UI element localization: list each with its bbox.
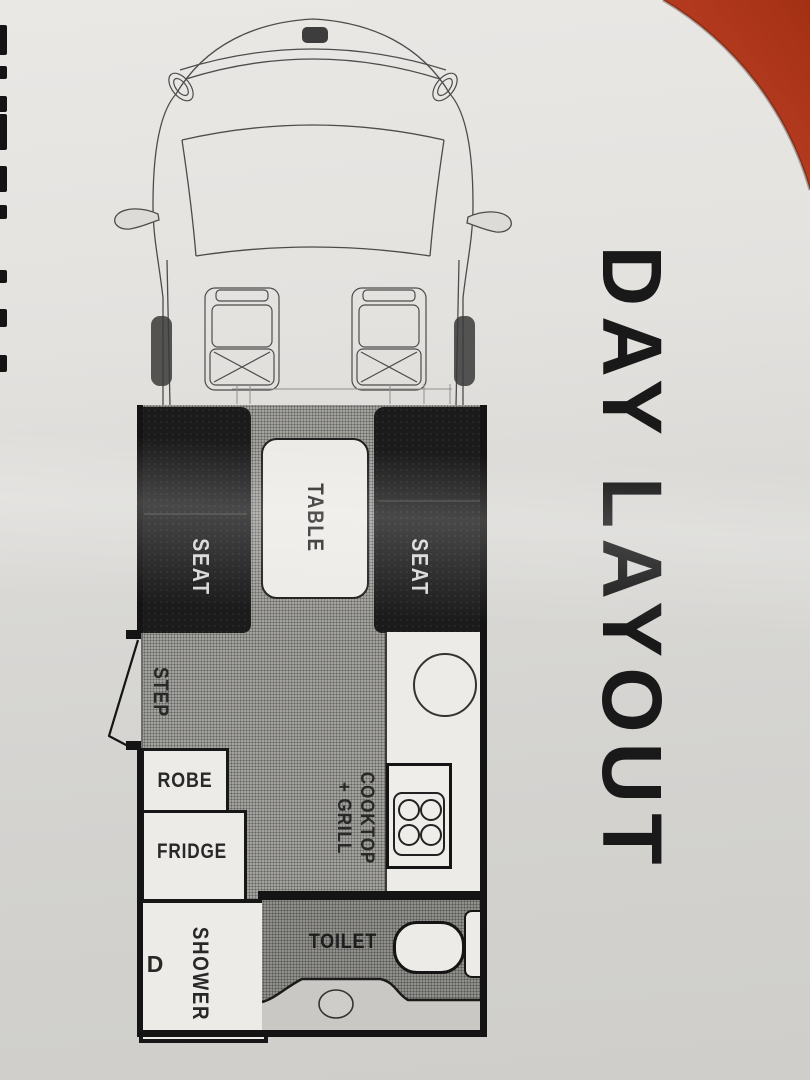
wall-right — [480, 405, 487, 1037]
seat-seam — [378, 500, 481, 502]
cab-rear-lines — [232, 384, 452, 404]
red-corner-graphic — [645, 0, 810, 205]
cut-off-text-fragment — [0, 270, 7, 283]
cut-off-text-fragment — [0, 66, 7, 79]
table-label: TABLE — [303, 482, 327, 553]
burner — [398, 824, 420, 846]
sink — [413, 653, 477, 717]
entry-door-swing — [100, 625, 150, 755]
cut-off-text-fragment — [0, 166, 7, 192]
basin — [319, 990, 353, 1018]
wall-bottom — [137, 1030, 487, 1037]
van-body-outline — [153, 19, 473, 406]
cut-off-text-fragment — [0, 114, 7, 150]
cut-off-text-fragment — [0, 309, 7, 327]
brochure-page: SEAT SEAT TABLE STEP ROBE FRIDGE SHOWER … — [0, 0, 810, 1080]
side-mirrors — [115, 209, 511, 232]
cut-off-text-fragment — [0, 355, 7, 372]
seat-left-label: SEAT — [189, 537, 213, 597]
cut-off-text-fragment — [0, 96, 7, 112]
corner-lights — [164, 69, 462, 105]
toilet-label: TOILET — [301, 931, 386, 953]
toilet-bowl — [393, 921, 465, 974]
cooktop-label-line1: COOKTOP — [355, 772, 378, 864]
burner — [398, 799, 420, 821]
cooktop-label-line2: + GRILL — [332, 782, 355, 854]
wall-left-upper — [137, 405, 143, 633]
cab-seats — [205, 288, 426, 390]
wall-left-lower — [137, 748, 143, 1037]
cooktop-label: COOKTOP + GRILL — [332, 773, 378, 863]
burner — [420, 799, 442, 821]
shower-door-marker: D — [144, 951, 166, 977]
step-label: STEP — [149, 664, 171, 720]
dinette-seat-right — [374, 407, 485, 633]
cut-off-text-fragment — [0, 205, 7, 219]
cooktop-unit — [386, 763, 452, 869]
dinette-seat-left — [140, 407, 251, 633]
fridge-label: FRIDGE — [151, 841, 233, 863]
cut-off-text-fragment — [0, 25, 7, 55]
windshield-sensor-blob — [302, 27, 328, 43]
burner — [420, 824, 442, 846]
toilet-wall — [258, 891, 483, 900]
seat-seam — [144, 513, 247, 515]
robe-label: ROBE — [149, 770, 220, 792]
cooktop-pan — [393, 792, 445, 856]
seat-right-label: SEAT — [408, 537, 432, 597]
page-title: DAY LAYOUT — [586, 240, 678, 880]
van-top-view-drawing — [90, 0, 530, 412]
shower-label: SHOWER — [188, 926, 212, 1021]
